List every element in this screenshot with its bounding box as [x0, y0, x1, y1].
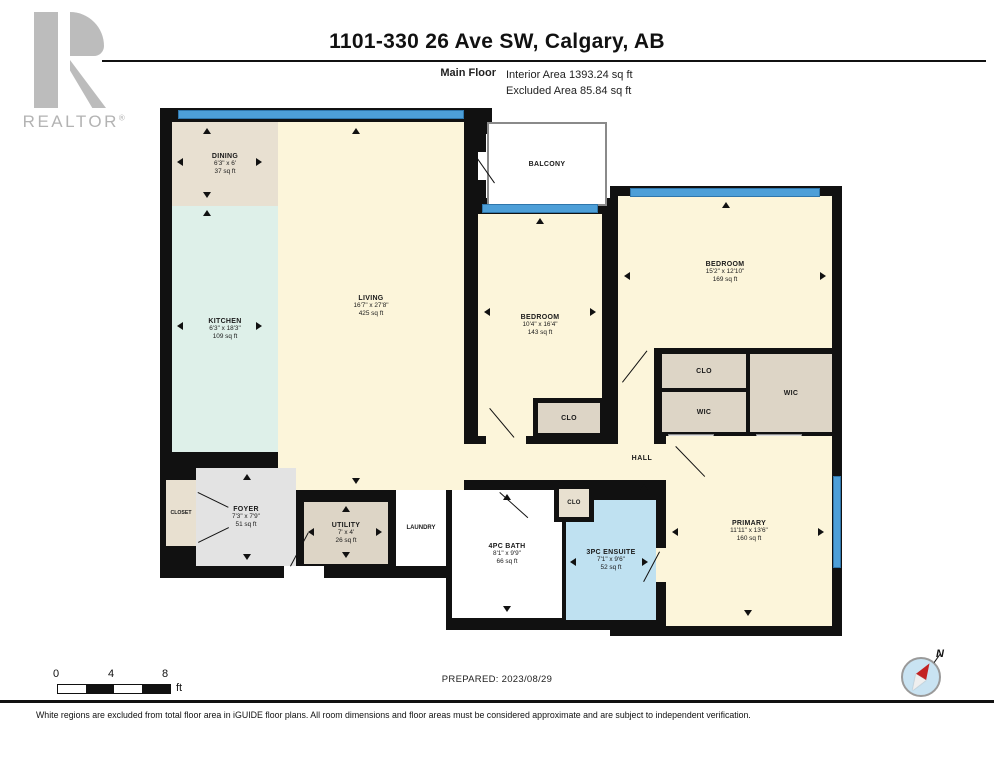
room-name: BEDROOM — [521, 314, 560, 321]
dim-arrow-icon — [642, 558, 648, 566]
dim-arrow-icon — [503, 606, 511, 612]
room-closet-bedroom1: CLO — [533, 398, 605, 438]
dim-arrow-icon — [376, 528, 382, 536]
room-name: CLO — [561, 415, 577, 422]
room-area: 37 sq ft — [215, 168, 236, 176]
scale-segment — [114, 685, 142, 693]
room-name: UTILITY — [332, 522, 361, 529]
room-name: CLO — [696, 368, 712, 375]
entry-door-opening — [284, 566, 324, 578]
scale-segment — [58, 685, 86, 693]
room-dims: 7'1" x 9'6" — [597, 556, 625, 564]
room-dims: 6'3" x 6' — [214, 160, 236, 168]
realtor-logo-bar — [34, 12, 58, 108]
dim-arrow-icon — [484, 308, 490, 316]
registered-mark: ® — [119, 113, 127, 122]
room-living: LIVING 16'7" x 27'8" 425 sq ft — [278, 122, 464, 490]
dim-arrow-icon — [570, 558, 576, 566]
room-dining: DINING 6'3" x 6' 37 sq ft — [172, 122, 278, 206]
dim-arrow-icon — [177, 322, 183, 330]
wall — [464, 180, 486, 204]
room-dims: 15'2" x 12'10" — [706, 268, 745, 276]
room-area: 109 sq ft — [213, 333, 238, 341]
dim-arrow-icon — [503, 494, 511, 500]
wall — [464, 130, 486, 152]
room-area: 169 sq ft — [713, 276, 738, 284]
title-divider — [102, 60, 986, 62]
room-wic-2: WIC — [750, 354, 832, 432]
room-name: BALCONY — [529, 161, 566, 168]
floorplan-page: REALTOR® 1101-330 26 Ave SW, Calgary, AB… — [0, 0, 994, 768]
realtor-logo-word: REALTOR® — [8, 112, 142, 132]
room-area: 26 sq ft — [336, 537, 357, 545]
floor-label: Main Floor — [0, 67, 496, 79]
dim-arrow-icon — [203, 192, 211, 198]
room-name: LIVING — [358, 295, 383, 302]
scale-segment — [142, 685, 170, 693]
room-area: 51 sq ft — [236, 521, 257, 529]
window — [482, 204, 598, 213]
scale-bar — [57, 684, 171, 694]
area-summary: Interior Area 1393.24 sq ft Excluded Are… — [506, 67, 633, 99]
room-dims: 11'11" x 13'6" — [730, 527, 768, 535]
footer-divider — [0, 700, 994, 703]
room-bath: 4PC BATH 8'1" x 9'9" 66 sq ft — [452, 490, 562, 618]
dim-arrow-icon — [243, 474, 251, 480]
room-area: 160 sq ft — [737, 535, 762, 543]
scale-segment — [86, 685, 114, 693]
dim-arrow-icon — [342, 552, 350, 558]
room-wic-1: WIC — [662, 392, 746, 432]
door-opening — [486, 436, 526, 446]
room-closet-hall: CLO — [662, 354, 746, 388]
window — [833, 476, 841, 568]
dim-arrow-icon — [352, 128, 360, 134]
room-name: FOYER — [233, 506, 259, 513]
dim-arrow-icon — [243, 554, 251, 560]
disclaimer-text: White regions are excluded from total fl… — [36, 710, 976, 720]
dim-arrow-icon — [820, 272, 826, 280]
room-name: DINING — [212, 153, 238, 160]
room-primary: PRIMARY 11'11" x 13'6" 160 sq ft — [666, 436, 832, 626]
room-dims: 7'3" x 7'9" — [232, 513, 260, 521]
room-area: 66 sq ft — [497, 558, 518, 566]
room-foyer: FOYER 7'3" x 7'9" 51 sq ft — [196, 468, 296, 566]
room-name: PRIMARY — [732, 520, 766, 527]
dim-arrow-icon — [256, 322, 262, 330]
dim-arrow-icon — [590, 308, 596, 316]
dim-arrow-icon — [722, 202, 730, 208]
hall-corridor — [390, 444, 682, 480]
dim-arrow-icon — [818, 528, 824, 536]
page-title: 1101-330 26 Ave SW, Calgary, AB — [0, 30, 994, 54]
room-dims: 10'4" x 16'4" — [522, 321, 557, 329]
room-name: KITCHEN — [208, 318, 241, 325]
dim-arrow-icon — [624, 272, 630, 280]
room-dims: 6'3" x 18'3" — [209, 325, 241, 333]
compass-icon — [901, 657, 941, 697]
dim-arrow-icon — [203, 128, 211, 134]
room-area: 143 sq ft — [528, 329, 553, 337]
room-area: 425 sq ft — [359, 310, 384, 318]
excluded-area: Excluded Area 85.84 sq ft — [506, 83, 633, 99]
room-hall: HALL — [612, 455, 672, 462]
dim-arrow-icon — [352, 478, 360, 484]
room-name: 4PC BATH — [489, 543, 526, 550]
room-balcony: BALCONY — [487, 122, 607, 206]
room-kitchen: KITCHEN 6'3" x 18'3" 109 sq ft — [172, 206, 278, 452]
prepared-date: PREPARED: 2023/08/29 — [0, 674, 994, 685]
bedroom2-entry-corridor — [618, 340, 654, 448]
room-entry-closet: CLOSET — [166, 480, 196, 546]
room-name: CLO — [567, 500, 581, 506]
dim-arrow-icon — [744, 610, 752, 616]
dim-arrow-icon — [203, 210, 211, 216]
dim-arrow-icon — [177, 158, 183, 166]
room-name: WIC — [697, 409, 712, 416]
room-dims: 8'1" x 9'9" — [493, 550, 521, 558]
window — [178, 110, 464, 119]
dim-arrow-icon — [256, 158, 262, 166]
room-closet-ensuite: CLO — [554, 484, 594, 522]
room-laundry: LAUNDRY — [396, 490, 446, 566]
room-name: WIC — [784, 390, 799, 397]
room-name: BEDROOM — [706, 261, 745, 268]
room-name: 3PC ENSUITE — [586, 549, 635, 556]
dim-arrow-icon — [536, 218, 544, 224]
room-name: LAUNDRY — [406, 525, 435, 531]
dim-arrow-icon — [308, 528, 314, 536]
room-bedroom-2: BEDROOM 15'2" x 12'10" 169 sq ft — [618, 196, 832, 348]
room-area: 52 sq ft — [601, 564, 622, 572]
dim-arrow-icon — [640, 484, 648, 490]
interior-area: Interior Area 1393.24 sq ft — [506, 67, 633, 83]
room-name: CLOSET — [170, 510, 191, 516]
room-dims: 7' x 4' — [338, 529, 354, 537]
room-dims: 16'7" x 27'8" — [353, 302, 388, 310]
dim-arrow-icon — [672, 528, 678, 536]
window — [630, 188, 820, 197]
dim-arrow-icon — [342, 506, 350, 512]
